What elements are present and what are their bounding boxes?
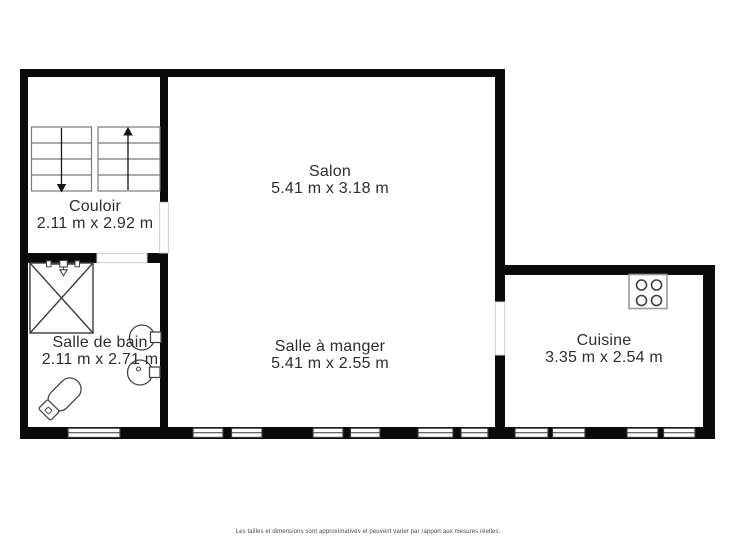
wall-bathroom-right (160, 253, 168, 439)
room-name: Salle de bain (52, 334, 147, 351)
room-label-salon: Salon 5.41 m x 3.18 m (271, 163, 389, 197)
window-symbol (627, 428, 658, 437)
window-symbol (232, 428, 263, 437)
room-name: Salle à manger (275, 338, 385, 355)
window-symbol (553, 428, 586, 437)
wall-bathroom-top-left (20, 253, 97, 263)
window-symbol (461, 428, 488, 437)
window-symbol (68, 428, 120, 437)
window-symbol (418, 428, 453, 437)
stairs-arrow-down-icon (57, 128, 66, 193)
wall-bathroom-top-stub (147, 253, 168, 263)
wall-salon-right-lower (495, 355, 505, 439)
room-dimensions: 5.41 m x 2.55 m (271, 355, 389, 372)
door-opening-couloir-salon (160, 202, 169, 253)
door-opening-bathroom (97, 253, 147, 262)
toilet-icon (37, 374, 86, 423)
room-name: Cuisine (577, 332, 632, 349)
window-symbol (664, 428, 696, 437)
window-symbol (193, 428, 223, 437)
room-name: Salon (309, 163, 351, 180)
stove-icon (629, 275, 667, 309)
wall-couloir-right (160, 69, 168, 202)
room-name: Couloir (69, 198, 121, 215)
room-label-cuisine: Cuisine 3.35 m x 2.54 m (545, 332, 663, 366)
window-symbol (515, 428, 548, 437)
wall-kitchen-right (703, 265, 715, 439)
window-symbol (351, 428, 381, 437)
shower-head-icon (47, 261, 80, 276)
door-opening-kitchen (495, 302, 504, 355)
room-dimensions: 2.11 m x 2.92 m (37, 215, 154, 232)
floor-plan: Couloir 2.11 m x 2.92 m Salon 5.41 m x 3… (0, 0, 736, 552)
wall-kitchen-top (495, 265, 715, 275)
room-dimensions: 2.11 m x 2.71 m (42, 351, 159, 368)
room-label-salle-a-manger: Salle à manger 5.41 m x 2.55 m (271, 338, 389, 372)
room-dimensions: 3.35 m x 2.54 m (545, 349, 663, 366)
room-dimensions: 5.41 m x 3.18 m (271, 180, 389, 197)
room-label-salle-de-bain: Salle de bain 2.11 m x 2.71 m (42, 334, 159, 368)
shower-icon (30, 261, 93, 334)
window-symbol (313, 428, 343, 437)
stairs-icon (32, 127, 161, 193)
room-label-couloir: Couloir 2.11 m x 2.92 m (37, 198, 154, 232)
floor-plan-drawing (0, 0, 736, 552)
wall-top (20, 69, 505, 77)
footer-disclaimer: Les tailles et dimensions sont approxima… (0, 529, 736, 535)
